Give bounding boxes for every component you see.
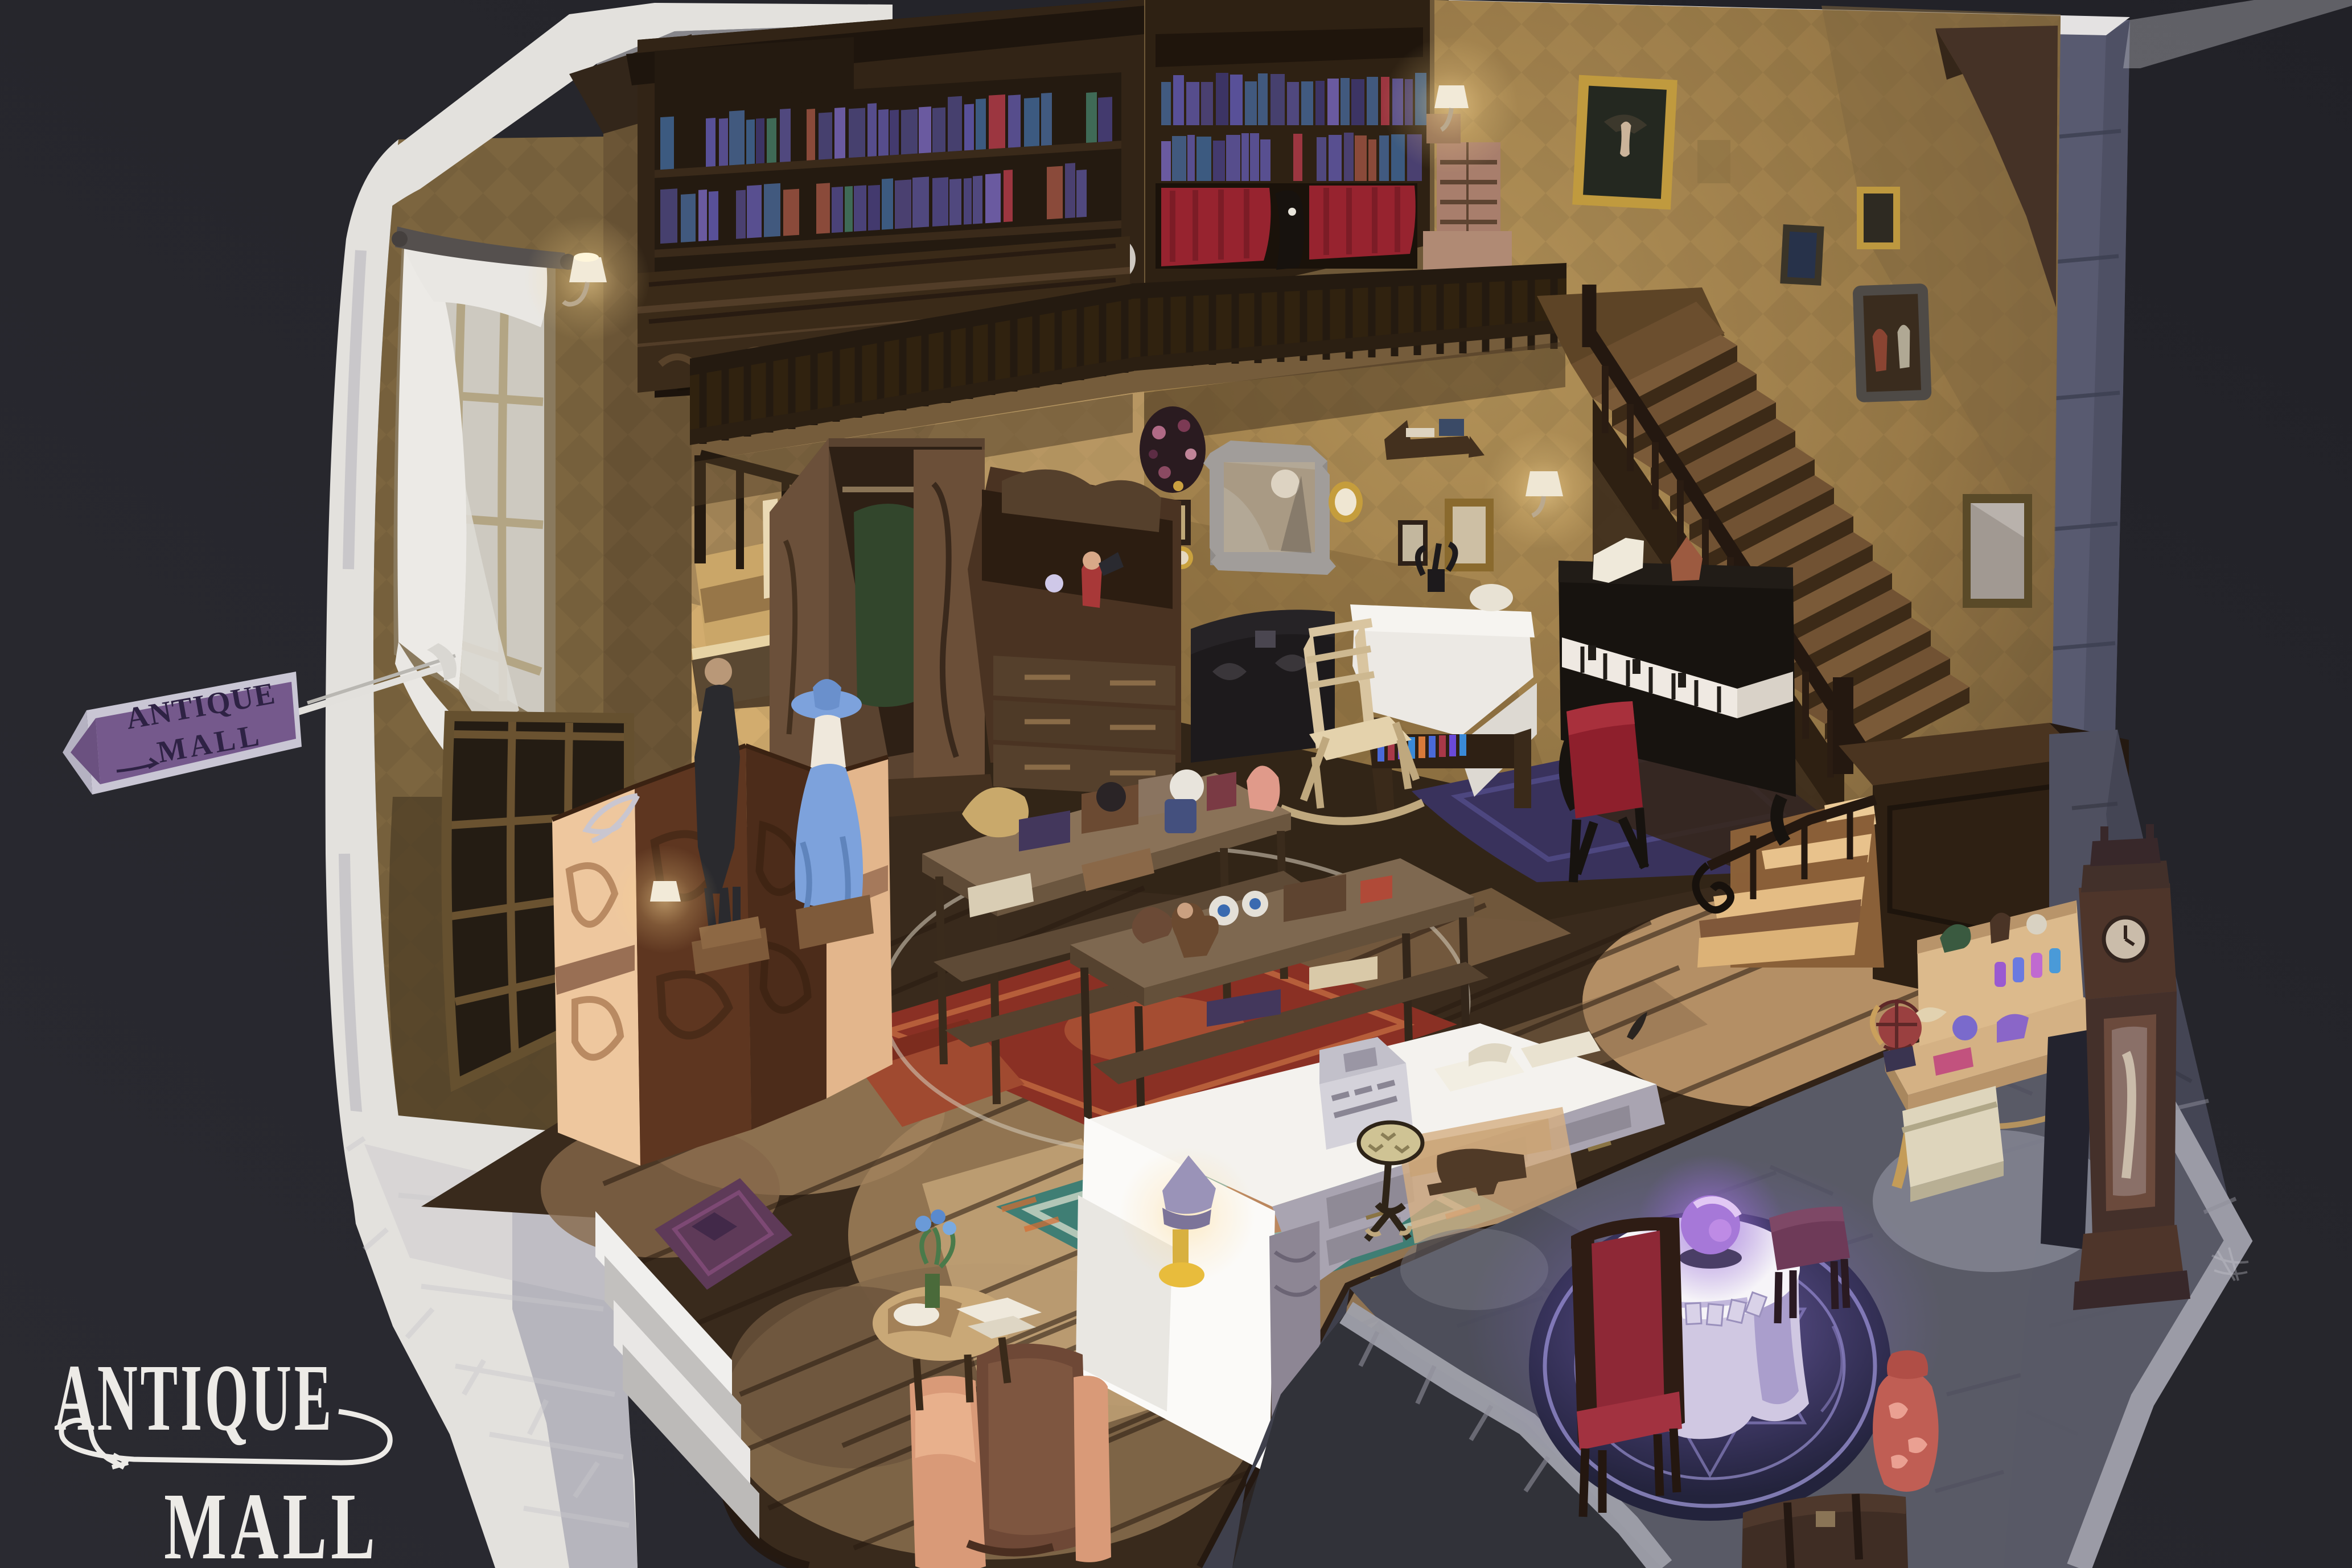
svg-text:MALL: MALL xyxy=(164,1474,379,1568)
svg-text:ANTIQUE: ANTIQUE xyxy=(54,1345,334,1451)
